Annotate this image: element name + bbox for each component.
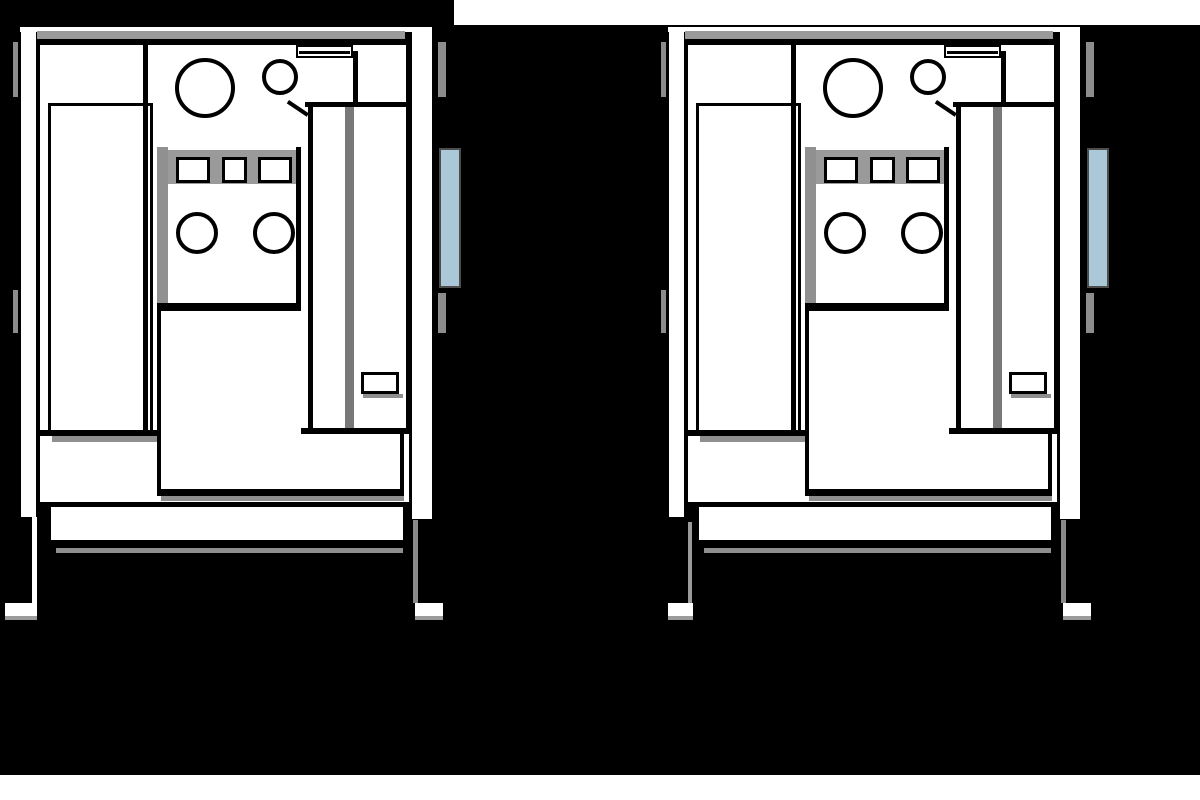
- machine-left-hinge-right-lower: [438, 293, 446, 333]
- machine-left-hinge-left-upper: [13, 42, 18, 97]
- machine-right-plinth: [699, 507, 1051, 540]
- machine-right-left-side-band: [669, 26, 684, 517]
- machine-left-column-top-line: [305, 102, 408, 107]
- machine-left-control-side-shade: [157, 147, 168, 311]
- figure-canvas: [0, 0, 1200, 800]
- machine-left-hinge-left-lower: [13, 290, 18, 333]
- machine-right-hinge-left-upper: [661, 42, 666, 97]
- machine-left-right-foot: [415, 603, 443, 620]
- machine-left-lower-door-bottom-line: [157, 489, 404, 496]
- machine-left-right-leg: [413, 520, 418, 603]
- machine-right-left-leg: [688, 522, 692, 603]
- machine-right-gauge-small: [910, 59, 946, 95]
- machine-left-lower-door-right-line: [400, 430, 404, 491]
- machine-left-plinth-bottom-line: [51, 540, 403, 548]
- machine-left-plinth-shadow: [56, 548, 403, 553]
- machine-left-hinge-right-upper: [438, 42, 446, 97]
- machine-left-plinth: [51, 507, 403, 540]
- machine-left-gauge-small: [262, 59, 298, 95]
- machine-right-column-top-line: [953, 102, 1056, 107]
- machine-right-column-left-line: [956, 107, 961, 433]
- machine-left-button-2: [222, 157, 247, 183]
- machine-right-left-foot: [668, 603, 693, 620]
- machine-right-left-door-shadow: [700, 436, 806, 442]
- machine-left-gauge-large: [175, 58, 235, 118]
- machine-right-right-side-band: [1060, 25, 1080, 519]
- machine-right: [666, 25, 1116, 625]
- machine-left-lower-door-shadow: [161, 496, 404, 501]
- machine-left-column-divider-shade: [345, 107, 354, 433]
- machine-right-left-door: [696, 103, 801, 436]
- machine-left-left-foot: [5, 603, 37, 620]
- machine-right-door-vent: [1009, 372, 1047, 394]
- machine-left-left-side-band: [21, 26, 36, 517]
- machine-right-side-handle: [1087, 148, 1109, 288]
- machine-left-panel-right-line: [296, 147, 301, 311]
- machine-right-base-line-right: [949, 428, 1057, 434]
- machine-left-slot-side-line: [353, 51, 358, 103]
- machine-right-button-1: [824, 157, 858, 183]
- machine-left-top-face-shade: [37, 31, 405, 39]
- machine-right-hinge-right-upper: [1086, 42, 1094, 97]
- machine-left-button-1: [176, 157, 210, 183]
- machine-right-slot-side-line: [1001, 51, 1006, 103]
- machine-left: [18, 25, 468, 625]
- machine-right-center-divider-line: [791, 45, 796, 435]
- machine-left-center-divider-line: [143, 45, 148, 435]
- machine-right-control-side-shade: [805, 147, 816, 311]
- machine-right-button-3: [906, 157, 940, 183]
- machine-right-top-face-shade: [685, 31, 1053, 39]
- machine-left-base-line-right: [301, 428, 409, 434]
- machine-right-lower-door-shadow: [809, 496, 1052, 501]
- machine-left-panel-bottom-line: [157, 303, 301, 311]
- machine-left-door-vent: [361, 372, 399, 394]
- machine-right-lower-door-right-line: [1048, 430, 1052, 491]
- machine-right-plinth-shadow: [704, 548, 1051, 553]
- machine-left-knob-1: [176, 212, 218, 254]
- machine-left-door-vent-shadow: [363, 394, 403, 398]
- machine-left-left-door: [48, 103, 153, 436]
- machine-right-hinge-left-lower: [661, 290, 666, 333]
- machine-left-right-edge-line: [432, 26, 438, 519]
- machine-right-right-foot: [1063, 603, 1091, 620]
- machine-right-gauge-large: [823, 58, 883, 118]
- machine-right-hinge-right-lower: [1086, 293, 1094, 333]
- machine-right-lower-door-bottom-line: [805, 489, 1052, 496]
- machine-right-top-slot-line: [947, 51, 998, 54]
- machine-right-panel-right-line: [944, 147, 949, 311]
- machine-right-lower-door-left-line: [805, 311, 809, 495]
- machine-left-left-leg: [32, 517, 37, 603]
- machine-right-door-vent-shadow: [1011, 394, 1051, 398]
- machine-right-plinth-bottom-line: [699, 540, 1051, 548]
- machine-right-right-edge-line: [1080, 26, 1086, 519]
- machine-right-knob-2: [901, 212, 943, 254]
- machine-right-column-divider-shade: [993, 107, 1002, 433]
- machine-left-button-3: [258, 157, 292, 183]
- machine-left-left-door-shadow: [52, 436, 158, 442]
- machine-left-top-slot-line: [299, 51, 350, 54]
- machine-left-knob-2: [253, 212, 295, 254]
- machine-right-button-2: [870, 157, 895, 183]
- machine-right-knob-1: [824, 212, 866, 254]
- machine-left-lower-door-left-line: [157, 311, 161, 495]
- machine-left-right-side-band: [412, 25, 432, 519]
- machine-left-column-left-line: [308, 107, 313, 433]
- machine-right-right-leg: [1061, 520, 1066, 603]
- machine-right-panel-bottom-line: [805, 303, 949, 311]
- machine-left-side-handle: [439, 148, 461, 288]
